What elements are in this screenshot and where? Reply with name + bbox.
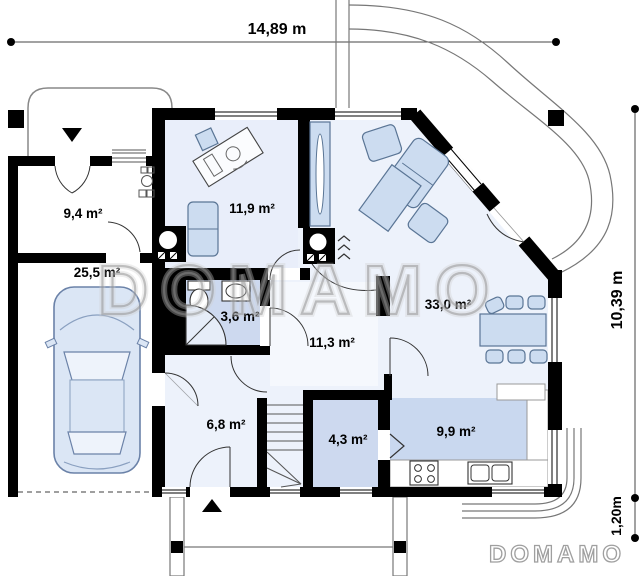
column-nw bbox=[8, 110, 24, 128]
floor-plan-drawing: 14,89 m 10,39 m 1,20m bbox=[0, 0, 640, 576]
dim-steps-label: 1,20m bbox=[608, 496, 624, 536]
wardrobe bbox=[310, 122, 330, 226]
porch-nw bbox=[28, 88, 172, 156]
window-stairs-bottom bbox=[270, 487, 300, 497]
window-vestibule-bottom bbox=[162, 487, 186, 497]
dim-width-label: 14,89 m bbox=[248, 21, 307, 38]
watermark-logo: DOMAMO bbox=[489, 541, 625, 568]
office-sofa bbox=[188, 202, 218, 256]
window-dining-right bbox=[548, 298, 562, 362]
room-label-utility: 9,4 m² bbox=[63, 206, 103, 221]
window-kitchen-right bbox=[548, 430, 562, 484]
watermark-center: DOMAMO bbox=[98, 251, 503, 329]
room-label-office: 11,9 m² bbox=[229, 201, 275, 216]
window-living-top bbox=[335, 108, 401, 120]
kitchen-cabinet bbox=[497, 384, 545, 400]
room-label-kitchen: 9,9 m² bbox=[436, 424, 476, 439]
room-label-vestibule: 6,8 m² bbox=[206, 417, 246, 432]
dim-height-label: 10,39 m bbox=[609, 271, 626, 330]
column-ne bbox=[548, 110, 564, 126]
window-kitchen-bottom bbox=[492, 487, 544, 497]
room-label-hall: 11,3 m² bbox=[309, 335, 355, 350]
window-office-top bbox=[215, 108, 277, 120]
floor-plan: 14,89 m 10,39 m 1,20m bbox=[0, 0, 640, 576]
room-label-pantry: 4,3 m² bbox=[328, 432, 368, 447]
window-pantry-bottom bbox=[340, 487, 372, 497]
